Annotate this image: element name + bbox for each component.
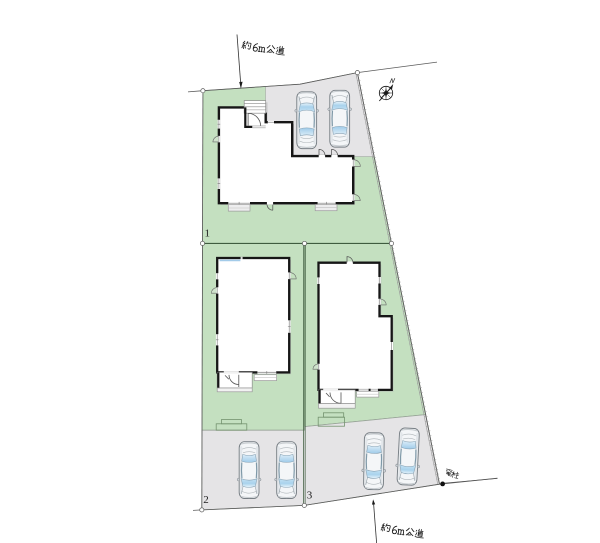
svg-text:3: 3 [307, 490, 313, 502]
svg-text:1: 1 [205, 228, 211, 240]
svg-text:2: 2 [203, 494, 209, 506]
